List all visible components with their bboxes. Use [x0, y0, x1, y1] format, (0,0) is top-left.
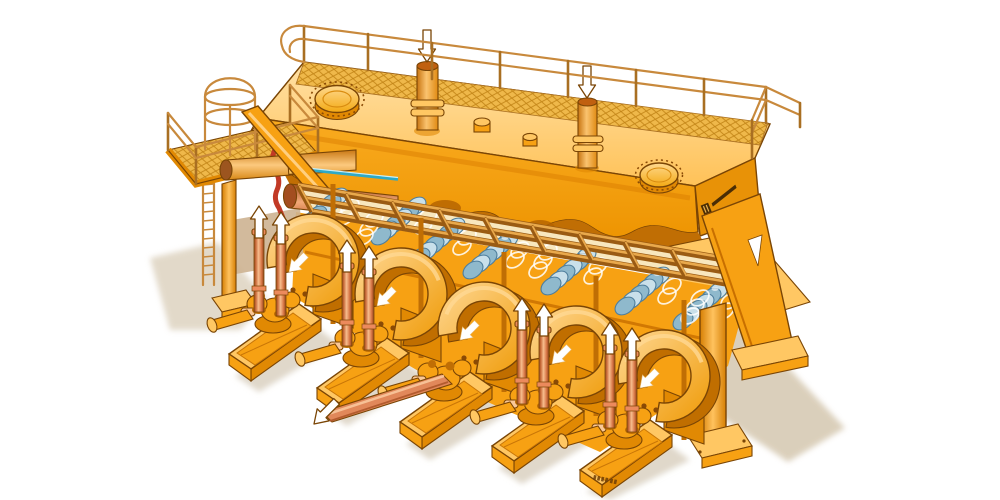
pipe-flange — [411, 109, 444, 116]
pipe-mouth — [578, 98, 597, 106]
machine-illustration: Cutaway technical illustration of a five… — [0, 0, 1000, 500]
cylinder-end-cap — [284, 184, 297, 208]
inlet-flow-arrow-down-icon — [579, 66, 596, 98]
cylinder-end-cap — [220, 160, 232, 180]
illustration-page: Cutaway technical illustration of a five… — [0, 0, 1000, 500]
anchor-bolt-icon — [742, 439, 745, 442]
deck-stub-1 — [474, 118, 490, 132]
anchor-bolt-icon — [698, 450, 701, 453]
pipe-flange — [573, 145, 603, 152]
deck-stub-2 — [523, 133, 537, 146]
handrail-corner-loop — [281, 26, 304, 62]
pipe-flange — [411, 100, 444, 107]
pipe-mouth — [417, 62, 438, 71]
pipe-flange — [573, 136, 603, 143]
